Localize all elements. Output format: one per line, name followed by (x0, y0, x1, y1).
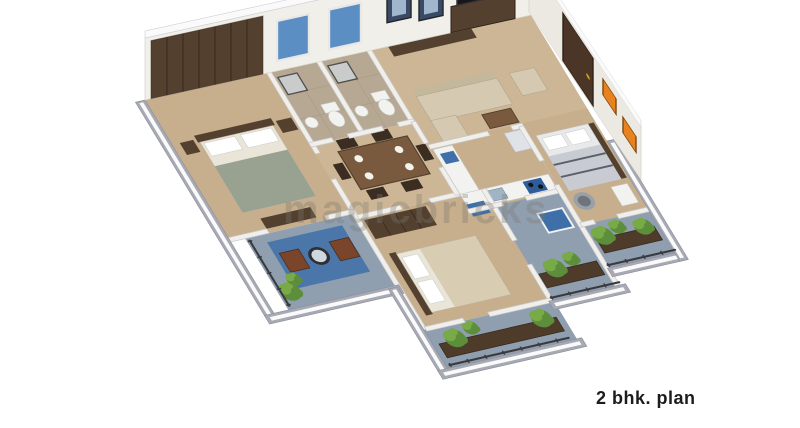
floor-plan-page: magicbricks 2 bhk. plan (0, 0, 800, 428)
bathroom-window (277, 14, 309, 61)
floor-plan-render (0, 0, 800, 428)
bathroom-window (329, 2, 361, 49)
plan-caption: 2 bhk. plan (596, 388, 696, 409)
